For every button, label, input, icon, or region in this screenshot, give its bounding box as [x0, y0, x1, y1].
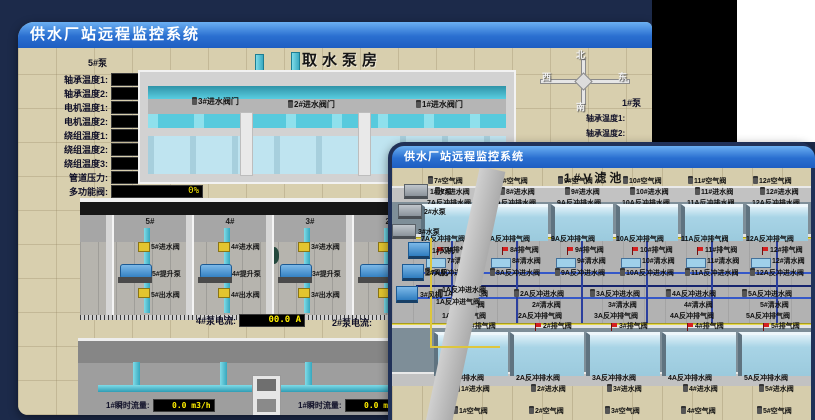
alarm-flag-icon: [697, 247, 703, 251]
backwash-blower[interactable]: 2#风机: [402, 264, 448, 281]
air-valve[interactable]: 4#空气阀: [681, 408, 716, 416]
pump-icon: [398, 204, 422, 219]
air-valve[interactable]: 2#空气阀: [529, 408, 564, 416]
valve-icon: [760, 189, 765, 195]
blower-label: 2#风机: [426, 268, 448, 278]
clean-water-valve[interactable]: 9#清水阀: [577, 258, 606, 266]
pump1-telemetry-panel: 1#泵 轴承温度1:轴承温度2:: [586, 96, 652, 139]
backwash-blower[interactable]: 1#风机: [408, 242, 454, 259]
alarm-flag-icon: [567, 247, 573, 251]
bay-number: 4#: [194, 217, 266, 226]
clean-water-valve[interactable]: 8#清水阀: [512, 258, 541, 266]
backwash-inlet-valve[interactable]: 4A反冲进水阀: [666, 291, 716, 299]
clean-water-valve[interactable]: 2#清水阀: [532, 302, 561, 310]
pump-base: [358, 277, 392, 283]
filter-basin: [738, 332, 811, 376]
telemetry-label: 轴承温度2:: [24, 87, 108, 100]
compass-north-label: 北: [576, 48, 585, 61]
flow-label: 1#瞬时流量:: [106, 400, 150, 411]
intake-valve-label: 3#进水阀门: [198, 97, 239, 106]
valve-icon: [288, 102, 293, 108]
pump-icon: [404, 184, 428, 199]
telemetry-row: 多功能阀: 0%: [24, 184, 224, 198]
pump4-current: 4#泵电流: 00.0 A: [196, 314, 305, 327]
valve-icon: [630, 189, 635, 195]
pump-bay: 4# 4#进水阀 4#提升泵 4#出水阀: [194, 215, 266, 315]
telemetry-label: 绕组温度1:: [24, 129, 108, 142]
alarm-flag-icon: [762, 247, 768, 251]
pump4-current-label: 4#泵电流:: [196, 314, 236, 327]
telemetry-value-lcd: 0%: [111, 185, 203, 198]
telemetry-label: 绕组温度3:: [24, 157, 108, 170]
window-filter-pool: 供水厂站远程监控系统 1#V滤池: [388, 142, 815, 420]
inlet-valve-icon[interactable]: [138, 242, 150, 252]
pump4-current-lcd: 00.0 A: [239, 314, 305, 327]
valve-icon: [681, 408, 686, 414]
flow-reading-left: 1#瞬时流量: 0.0 m3/h: [106, 399, 215, 412]
valve-icon: [529, 408, 534, 414]
telemetry-label: 电机温度2:: [24, 115, 108, 128]
blower-icon: [396, 286, 418, 303]
outlet-valve-icon[interactable]: [218, 288, 230, 298]
intake-valve-label: 2#进水阀门: [294, 100, 335, 109]
exhaust-valve[interactable]: 2#排气阀: [535, 323, 572, 331]
filter-cell: 3A反冲进水阀 3#清水阀 3A反冲排气阀 3#排气阀 3A反冲排水阀 3#进水…: [584, 291, 660, 420]
filter-cell: 2A反冲进水阀 2#清水阀 2A反冲排气阀 2#排气阀 2A反冲排水阀 2#进水…: [508, 291, 584, 420]
valve-icon: [683, 386, 688, 392]
air-valve[interactable]: 5#空气阀: [757, 408, 792, 416]
intake-channel-2: [148, 114, 506, 128]
pump2-current-label: 2#泵电流:: [332, 316, 372, 329]
backwash-valve-label[interactable]: 1A反冲进气阀: [436, 297, 480, 307]
blower-icon: [408, 242, 430, 259]
equipment-column: 1#水泵 2#水泵 3#水泵: [392, 178, 502, 420]
telemetry-label: 轴承温度1:: [586, 113, 652, 124]
pump-label: 3#水泵: [418, 227, 440, 237]
background-white-area: [737, 0, 815, 142]
outlet-valve-label: 3#出水阀: [311, 290, 340, 300]
bay-number: 5#: [114, 217, 186, 226]
control-cabinet: [621, 258, 641, 268]
pump5-panel-header: 5#泵: [88, 56, 224, 69]
valve-icon: [742, 291, 747, 297]
inlet-valve[interactable]: 8#进水阀: [500, 189, 535, 197]
alarm-flag-icon: [502, 247, 508, 251]
intake-valve[interactable]: 1#进水阀门: [416, 99, 463, 110]
backwash-drain-valve[interactable]: 5A反冲排水阀: [744, 375, 788, 383]
outlet-valve-label: 4#出水阀: [231, 290, 260, 300]
pump-bay: 5# 5#进水阀 5#提升泵 5#出水阀: [114, 215, 186, 315]
pump-base: [118, 277, 152, 283]
bay-number: 3#: [274, 217, 346, 226]
inlet-valve[interactable]: 2#进水阀: [531, 386, 566, 394]
control-cabinet: [751, 258, 771, 268]
intake-valve[interactable]: 3#进水阀门: [192, 96, 239, 107]
pump-base: [198, 277, 232, 283]
alarm-flag-icon: [632, 247, 638, 251]
valve-icon: [750, 270, 755, 276]
lift-pump-label: 4#提升泵: [232, 269, 261, 279]
clean-water-valve[interactable]: 3#清水阀: [608, 302, 637, 310]
lift-pump-label: 3#提升泵: [312, 269, 341, 279]
backwash-valve-label[interactable]: 1A反冲进水阀: [442, 285, 486, 295]
background-black-area: [652, 0, 737, 145]
inlet-valve[interactable]: 3#进水阀: [607, 386, 642, 394]
valve-icon: [590, 291, 595, 297]
filter-basin: [510, 332, 584, 376]
inlet-valve[interactable]: 9#进水阀: [565, 189, 600, 197]
window1-titlebar[interactable]: 供水厂站远程监控系统: [18, 22, 652, 48]
valve-icon: [753, 178, 758, 184]
compass-center: [574, 72, 592, 90]
valve-icon: [685, 270, 690, 276]
backwash-inlet-valve[interactable]: 9A反冲进水阀: [555, 270, 605, 278]
telemetry-label: 轴承温度2:: [586, 128, 652, 139]
valve-icon: [514, 291, 519, 297]
inlet-valve[interactable]: 10#进水阀: [630, 189, 669, 197]
air-valve[interactable]: 3#空气阀: [605, 408, 640, 416]
compass-east-label: 东: [618, 70, 627, 83]
filter-cell: 12#空气阀 12#进水阀 12A反冲排水阀 12A反冲排气阀 12#排气阀 1…: [745, 178, 810, 283]
filter-cell: 9#空气阀 9#进水阀 9A反冲排水阀 9A反冲排气阀 9#排气阀 9#清水阀 …: [550, 178, 615, 283]
backwash-inlet-valve[interactable]: 12A反冲进水阀: [750, 270, 804, 278]
backwash-exhaust-valve[interactable]: 10A反冲排气阀: [616, 236, 664, 244]
pump-base: [278, 277, 312, 283]
blower-icon: [402, 264, 424, 281]
exhaust-valve[interactable]: 8#排气阀: [502, 247, 539, 255]
inlet-valve-icon[interactable]: [218, 242, 230, 252]
yellow-pipe-horizontal: [430, 346, 500, 348]
compass-west-label: 西: [542, 70, 551, 83]
basin-walkway: [358, 112, 371, 176]
pipe-stub: [220, 362, 227, 386]
exhaust-valve[interactable]: 12#排气阀: [762, 247, 803, 255]
clean-water-valve[interactable]: 10#清水阀: [642, 258, 675, 266]
backwash-drain-valve[interactable]: 3A反冲排水阀: [592, 375, 636, 383]
clean-water-valve[interactable]: 12#清水阀: [772, 258, 805, 266]
pipe-stub: [133, 362, 140, 386]
outlet-valve-icon[interactable]: [138, 288, 150, 298]
inlet-valve[interactable]: 11#进水阀: [695, 189, 733, 197]
exhaust-valve[interactable]: 11#排气阀: [697, 247, 737, 255]
filter-basin: [586, 332, 660, 376]
intake-valve[interactable]: 2#进水阀门: [288, 99, 335, 110]
pump-bays: 5# 5#进水阀 5#提升泵 5#出水阀 4#: [114, 215, 426, 315]
filter-cell: 4A反冲进水阀 4#清水阀 4A反冲排气阀 4#排气阀 4A反冲排水阀 4#进水…: [660, 291, 736, 420]
backwash-inlet-valve[interactable]: 2A反冲进水阀: [514, 291, 564, 299]
valve-icon: [558, 178, 563, 184]
backwash-drain-valve[interactable]: 4A反冲排水阀: [668, 375, 712, 383]
inlet-valve-label: 3#进水阀: [311, 242, 340, 252]
valve-icon: [607, 386, 612, 392]
valve-icon: [620, 270, 625, 276]
backwash-inlet-valve[interactable]: 10A反冲进水阀: [620, 270, 674, 278]
flow-meter-cabinet: [252, 375, 281, 415]
filter-basin: [662, 332, 736, 376]
air-valve[interactable]: 12#空气阀: [753, 178, 792, 186]
backwash-inlet-valve[interactable]: 3A反冲进水阀: [590, 291, 640, 299]
inlet-valve-icon[interactable]: [298, 242, 310, 252]
backwash-exhaust-valve[interactable]: 9A反冲排气阀: [551, 236, 595, 244]
valve-icon: [757, 408, 762, 414]
valve-icon: [531, 386, 536, 392]
backwash-exhaust-valve[interactable]: 2A反冲排气阀: [518, 313, 562, 321]
telemetry-label: 管道压力:: [24, 171, 108, 184]
valve-icon: [565, 189, 570, 195]
backwash-drain-valve[interactable]: 2A反冲排水阀: [516, 375, 560, 383]
flow-label: 1#瞬时流量:: [298, 400, 342, 411]
pump-icon: [392, 224, 416, 239]
exhaust-valve[interactable]: 10#排气阀: [632, 247, 673, 255]
air-valve[interactable]: 10#空气阀: [623, 178, 662, 186]
clean-water-valve[interactable]: 5#清水阀: [760, 302, 789, 310]
valve-icon: [192, 99, 197, 105]
backwash-blower[interactable]: 3#风机: [396, 286, 442, 303]
alarm-flag-icon: [687, 323, 693, 327]
valve-icon: [688, 178, 693, 184]
telemetry-label: 轴承温度1:: [24, 73, 108, 86]
control-cabinet: [556, 258, 576, 268]
filter-cell: 10#空气阀 10#进水阀 10A反冲排水阀 10A反冲排气阀 10#排气阀 1…: [615, 178, 680, 283]
inlet-valve-label: 5#进水阀: [151, 242, 180, 252]
pipe-stub: [305, 362, 312, 386]
backwash-exhaust-valve[interactable]: 5A反冲排气阀: [746, 313, 790, 321]
exhaust-valve[interactable]: 9#排气阀: [567, 247, 604, 255]
window1-title: 供水厂站远程监控系统: [30, 26, 200, 43]
filter-pool-scene: 1#V滤池 7#空气阀 7#进水阀 7A反冲排水阀 7A反冲排气阀 7#排气阀 …: [392, 168, 811, 420]
telemetry-label: 绕组温度2:: [24, 143, 108, 156]
compass-south-label: 南: [576, 100, 585, 113]
pump-label: 1#水泵: [430, 187, 452, 197]
valve-icon: [759, 386, 764, 392]
outlet-valve-icon[interactable]: [298, 288, 310, 298]
backwash-pump[interactable]: 1#水泵: [404, 184, 452, 199]
air-valve[interactable]: 11#空气阀: [688, 178, 726, 186]
telemetry-label: 多功能阀:: [24, 185, 108, 198]
backwash-pump[interactable]: 3#水泵: [392, 224, 440, 239]
backwash-exhaust-valve[interactable]: 4A反冲排气阀: [670, 313, 714, 321]
pump-bay: 3# 3#进水阀 3#提升泵 3#出水阀: [274, 215, 346, 315]
scene2-title: 1#V滤池: [564, 169, 624, 186]
pump1-panel-header: 1#泵: [622, 96, 652, 109]
desktop: 供水厂站远程监控系统 取水泵房 5#泵 轴承温度1: 100.0℃: [0, 0, 815, 420]
filter-cell: 5A反冲进水阀 5#清水阀 5A反冲排气阀 5#排气阀 5A反冲排水阀 5#进水…: [736, 291, 811, 420]
backwash-exhaust-valve[interactable]: 11A反冲排气阀: [681, 236, 728, 244]
valve-icon: [555, 270, 560, 276]
backwash-pump[interactable]: 2#水泵: [398, 204, 446, 219]
backwash-inlet-valve[interactable]: 11A反冲进水阀: [685, 270, 738, 278]
blower-label: 1#风机: [432, 246, 454, 256]
window2-title: 供水厂站远程监控系统: [404, 151, 524, 163]
alarm-flag-icon: [535, 323, 541, 327]
inlet-valve[interactable]: 4#进水阀: [683, 386, 718, 394]
basin-walkway: [240, 112, 253, 176]
valve-icon: [666, 291, 671, 297]
control-cabinet: [686, 258, 706, 268]
valve-icon: [605, 408, 610, 414]
pump-label: 2#水泵: [424, 207, 446, 217]
scene1-title: 取水泵房: [302, 49, 382, 70]
backwash-exhaust-valve[interactable]: 12A反冲排气阀: [746, 236, 794, 244]
exhaust-valve[interactable]: 3#排气阀: [611, 323, 648, 331]
alarm-flag-icon: [611, 323, 617, 327]
valve-icon: [695, 189, 700, 195]
inlet-valve-label: 4#进水阀: [231, 242, 260, 252]
inlet-valve[interactable]: 12#进水阀: [760, 189, 799, 197]
window2-titlebar[interactable]: 供水厂站远程监控系统: [392, 146, 815, 168]
outlet-valve-label: 5#出水阀: [151, 290, 180, 300]
flow-lcd: 0.0 m3/h: [153, 399, 215, 412]
inlet-valve[interactable]: 5#进水阀: [759, 386, 794, 394]
clean-water-valve[interactable]: 11#清水阀: [707, 258, 739, 266]
backwash-inlet-valve[interactable]: 5A反冲进水阀: [742, 291, 792, 299]
backwash-exhaust-valve[interactable]: 3A反冲排气阀: [594, 313, 638, 321]
lift-pump-label: 5#提升泵: [152, 269, 181, 279]
clean-water-valve[interactable]: 4#清水阀: [684, 302, 713, 310]
filter-cell: 11#空气阀 11#进水阀 11A反冲排水阀 11A反冲排气阀 11#排气阀 1…: [680, 178, 745, 283]
valve-icon: [416, 102, 421, 108]
intake-valve-label: 1#进水阀门: [422, 100, 463, 109]
exhaust-valve[interactable]: 4#排气阀: [687, 323, 724, 331]
pump1-panel-rows: 轴承温度1:轴承温度2:: [586, 113, 652, 139]
exhaust-valve[interactable]: 5#排气阀: [763, 323, 800, 331]
telemetry-label: 电机温度1:: [24, 101, 108, 114]
alarm-flag-icon: [763, 323, 769, 327]
